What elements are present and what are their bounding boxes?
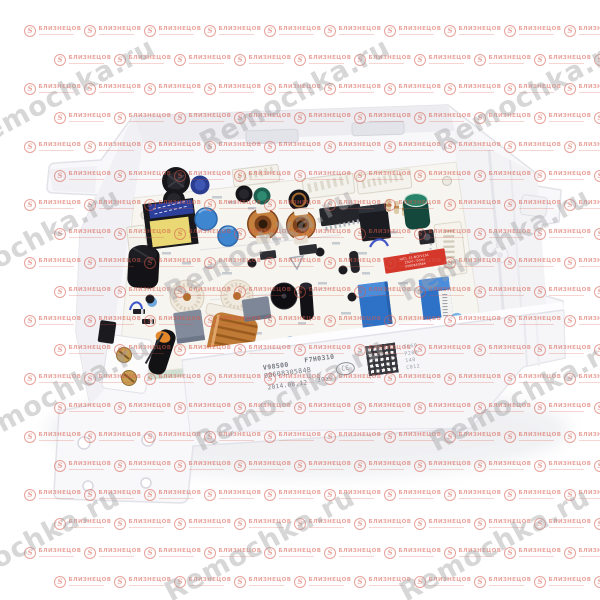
capacitor-cylinder-top (300, 283, 312, 290)
silkscreen-mark (182, 262, 191, 265)
toroid-clip (294, 235, 309, 245)
product-photo-stage: V98500 F7H0310 0060830584B 2014.08.12 30… (0, 0, 600, 600)
silkscreen-mark (318, 282, 327, 285)
toroid-core (297, 221, 305, 229)
terminal-connector (98, 320, 117, 344)
mount-hole (142, 434, 154, 446)
resistor-band (386, 204, 391, 207)
transformer-tape (150, 217, 192, 248)
tray-vent-slot (246, 129, 298, 144)
silkscreen-mark (332, 242, 340, 245)
transistor (339, 266, 348, 275)
disc-capacitor-blue (195, 208, 217, 230)
silkscreen-mark (398, 282, 408, 285)
bobbin-center (183, 293, 191, 301)
toroid-core (259, 220, 268, 229)
diode-band (141, 309, 144, 314)
silkscreen-mark (362, 272, 370, 275)
pcb-assembly (46, 105, 570, 503)
disc-capacitor-blue (218, 226, 238, 246)
silkscreen-mark (357, 252, 367, 255)
silkscreen-mark (212, 196, 222, 199)
silkscreen-mark (409, 252, 419, 255)
silkscreen-mark (222, 272, 232, 275)
toroid-clip (256, 234, 271, 244)
mount-hole (83, 481, 93, 491)
mount-hole (141, 478, 151, 488)
capacitor-top (239, 189, 249, 199)
transistor (146, 295, 155, 304)
tray-post-hole (497, 252, 503, 258)
push-button-cap (424, 234, 431, 241)
mount-hole (78, 437, 90, 449)
left-tab-shade (49, 166, 97, 193)
bobbin-center (233, 292, 241, 300)
silkscreen-mark (204, 266, 212, 269)
silkscreen-mark (228, 201, 236, 204)
silkscreen-mark (162, 252, 171, 255)
tray-clip (520, 194, 549, 217)
transistor (348, 293, 357, 302)
silkscreen-mark (298, 322, 306, 325)
diode-band (150, 319, 153, 324)
tray-vent-slot (352, 121, 404, 136)
capacitor-teal-top (257, 191, 267, 201)
transistor (248, 259, 257, 268)
pcb-photo (0, 0, 600, 600)
silkscreen-mark (272, 238, 281, 241)
buzzer-hole (282, 294, 287, 299)
silkscreen-mark (341, 312, 351, 315)
resistor-band (394, 206, 399, 209)
pcb-screw (443, 177, 452, 186)
capacitor-blue-center (195, 180, 206, 191)
